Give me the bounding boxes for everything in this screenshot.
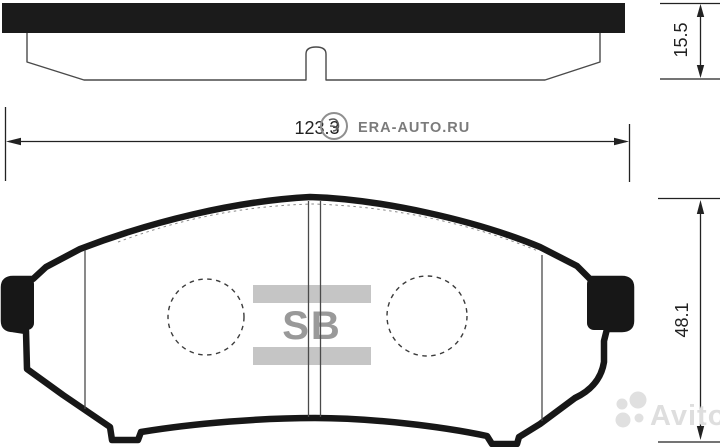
height-dimension-value: 48.1 [672, 302, 692, 337]
thickness-dimension-value: 15.5 [671, 22, 691, 57]
sb-logo-bar-bottom [253, 347, 371, 365]
brake-pad-technical-drawing: 15.5 123.3 ERA-AUTO.RU SB [0, 0, 720, 447]
backing-plate-bar [2, 3, 625, 33]
era-auto-watermark-text: ERA-AUTO.RU [358, 120, 470, 136]
left-ear-tab [3, 277, 34, 330]
brake-pad-drawing-page: 15.5 123.3 ERA-AUTO.RU SB [0, 0, 720, 447]
sb-logo-bar-top [253, 285, 371, 303]
sb-logo-text: SB [282, 304, 342, 348]
right-ear-tab [587, 277, 632, 330]
length-dimension-value: 123.3 [294, 118, 339, 138]
avito-watermark-text: Avito [650, 400, 720, 432]
